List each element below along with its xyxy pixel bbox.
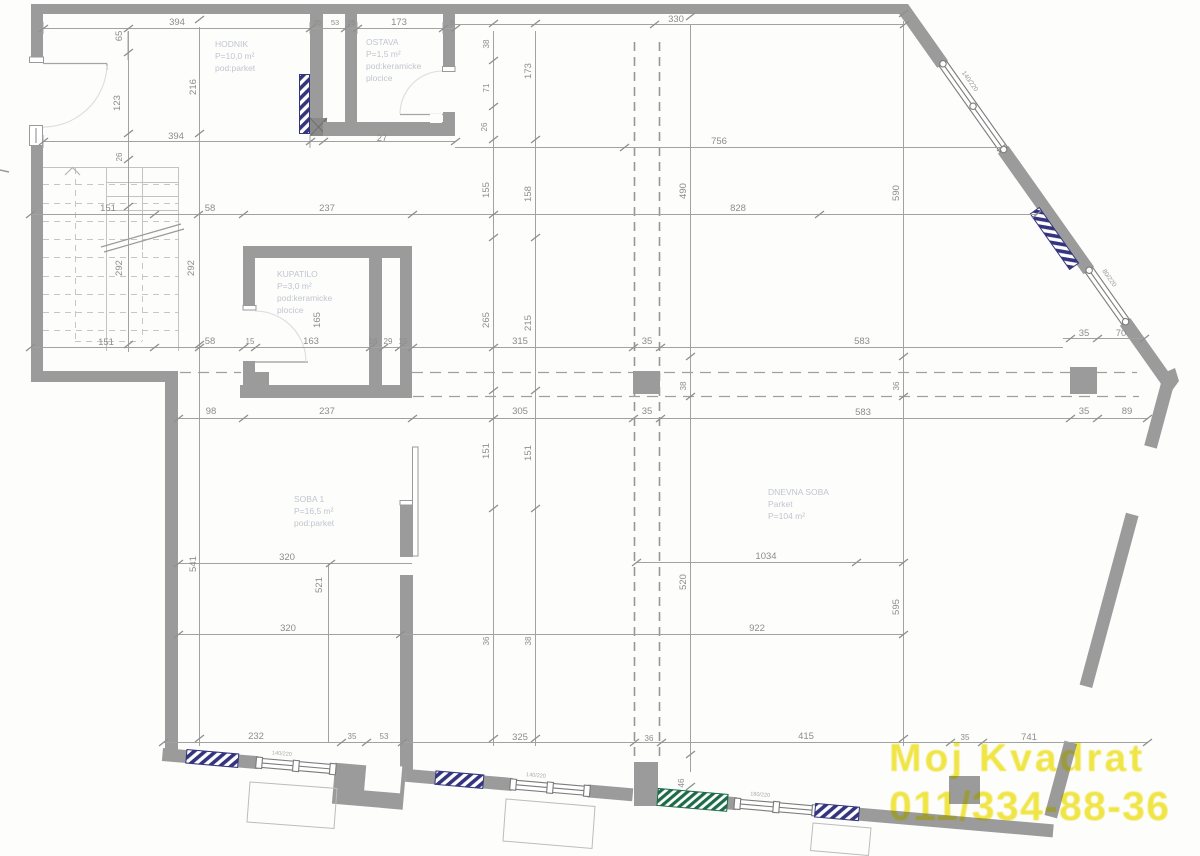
svg-text:320: 320 bbox=[279, 552, 295, 563]
svg-text:315: 315 bbox=[512, 336, 528, 347]
svg-text:Parket: Parket bbox=[768, 499, 793, 509]
svg-text:237: 237 bbox=[319, 203, 335, 214]
svg-text:89: 89 bbox=[1122, 406, 1133, 417]
svg-text:35: 35 bbox=[313, 18, 321, 27]
svg-text:29: 29 bbox=[384, 337, 393, 346]
svg-text:828: 828 bbox=[730, 203, 746, 214]
svg-text:325: 325 bbox=[512, 732, 528, 743]
svg-text:P=10,0 m²: P=10,0 m² bbox=[215, 51, 255, 61]
svg-text:265: 265 bbox=[481, 312, 492, 328]
svg-text:155: 155 bbox=[481, 182, 492, 198]
svg-text:583: 583 bbox=[854, 336, 870, 347]
svg-text:KUPATILO: KUPATILO bbox=[277, 269, 318, 279]
svg-text:305: 305 bbox=[512, 406, 528, 417]
svg-text:232: 232 bbox=[248, 731, 264, 742]
svg-text:521: 521 bbox=[314, 577, 325, 593]
svg-text:590: 590 bbox=[891, 185, 902, 201]
svg-text:P=1,5 m²: P=1,5 m² bbox=[366, 49, 401, 59]
svg-text:292: 292 bbox=[186, 260, 197, 276]
svg-text:35: 35 bbox=[1079, 328, 1090, 339]
svg-text:158: 158 bbox=[523, 186, 534, 202]
svg-text:151: 151 bbox=[481, 443, 492, 459]
svg-text:46: 46 bbox=[677, 778, 686, 787]
svg-text:151: 151 bbox=[523, 445, 534, 461]
svg-text:58: 58 bbox=[205, 336, 216, 347]
svg-text:Moj Kvadrat: Moj Kvadrat bbox=[889, 737, 1145, 780]
svg-text:35: 35 bbox=[642, 406, 653, 417]
svg-text:53: 53 bbox=[380, 732, 389, 741]
svg-text:P=16,5 m²: P=16,5 m² bbox=[294, 506, 334, 516]
svg-text:26: 26 bbox=[115, 152, 124, 161]
svg-text:38: 38 bbox=[524, 636, 533, 645]
svg-text:490: 490 bbox=[678, 183, 689, 199]
svg-text:26: 26 bbox=[480, 122, 489, 131]
svg-text:1034: 1034 bbox=[755, 551, 776, 562]
svg-text:15: 15 bbox=[246, 337, 255, 346]
svg-text:237: 237 bbox=[319, 406, 335, 417]
svg-text:394: 394 bbox=[168, 131, 184, 142]
svg-text:plocice: plocice bbox=[366, 73, 393, 83]
svg-text:15: 15 bbox=[347, 18, 355, 27]
svg-text:plocice: plocice bbox=[277, 305, 304, 315]
svg-text:OSTAVA: OSTAVA bbox=[366, 37, 399, 47]
svg-text:HODNIK: HODNIK bbox=[215, 39, 248, 49]
svg-text:394: 394 bbox=[169, 17, 185, 28]
svg-text:P=104 m²: P=104 m² bbox=[768, 511, 805, 521]
svg-text:330: 330 bbox=[668, 14, 684, 25]
svg-text:27: 27 bbox=[377, 133, 388, 144]
svg-text:320: 320 bbox=[280, 623, 296, 634]
svg-text:DNEVNA SOBA: DNEVNA SOBA bbox=[768, 487, 829, 497]
svg-text:595: 595 bbox=[891, 599, 902, 615]
svg-text:pod:keramicke: pod:keramicke bbox=[366, 61, 422, 71]
svg-text:71: 71 bbox=[482, 83, 491, 92]
svg-text:165: 165 bbox=[312, 312, 323, 328]
svg-text:922: 922 bbox=[749, 623, 765, 634]
svg-text:38: 38 bbox=[679, 381, 688, 390]
svg-text:173: 173 bbox=[391, 17, 407, 28]
svg-text:415: 415 bbox=[798, 731, 814, 742]
svg-text:756: 756 bbox=[711, 136, 727, 147]
svg-text:151: 151 bbox=[100, 203, 116, 214]
svg-text:15: 15 bbox=[399, 337, 408, 346]
svg-text:58: 58 bbox=[205, 203, 216, 214]
svg-text:35: 35 bbox=[642, 336, 653, 347]
svg-text:35: 35 bbox=[1079, 406, 1090, 417]
svg-text:151: 151 bbox=[98, 337, 114, 348]
svg-text:292: 292 bbox=[114, 260, 125, 276]
svg-text:35: 35 bbox=[348, 732, 357, 741]
svg-text:38: 38 bbox=[482, 39, 491, 48]
svg-text:pod:keramicke: pod:keramicke bbox=[277, 293, 333, 303]
svg-text:98: 98 bbox=[206, 406, 217, 417]
svg-text:P=3,0 m²: P=3,0 m² bbox=[277, 281, 312, 291]
svg-text:36: 36 bbox=[482, 636, 491, 645]
svg-text:520: 520 bbox=[678, 574, 689, 590]
svg-text:215: 215 bbox=[523, 315, 534, 331]
svg-text:65: 65 bbox=[114, 31, 125, 42]
svg-text:541: 541 bbox=[188, 556, 199, 572]
svg-text:123: 123 bbox=[112, 95, 123, 111]
svg-text:163: 163 bbox=[303, 336, 319, 347]
svg-text:216: 216 bbox=[188, 79, 199, 95]
svg-text:583: 583 bbox=[855, 407, 871, 418]
svg-text:5: 5 bbox=[450, 18, 454, 27]
svg-text:173: 173 bbox=[523, 63, 534, 79]
svg-text:70: 70 bbox=[1116, 328, 1127, 339]
svg-text:36: 36 bbox=[892, 381, 901, 390]
svg-text:16: 16 bbox=[369, 337, 378, 346]
svg-text:pod:parket: pod:parket bbox=[294, 518, 335, 528]
svg-text:36: 36 bbox=[645, 734, 654, 743]
svg-text:011/334-88-36: 011/334-88-36 bbox=[889, 783, 1170, 829]
svg-text:pod:parket: pod:parket bbox=[215, 63, 256, 73]
svg-text:SOBA 1: SOBA 1 bbox=[294, 494, 325, 504]
svg-text:53: 53 bbox=[331, 18, 339, 27]
